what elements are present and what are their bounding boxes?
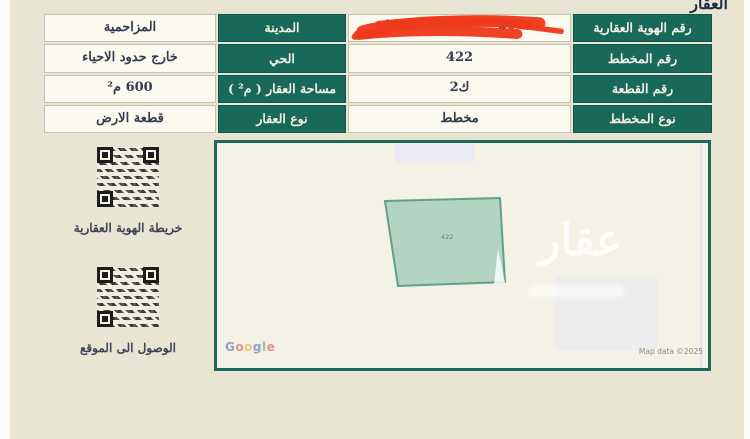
label-plan-number: رقم المخطط — [573, 44, 712, 72]
watermark-aqar: عقار — [539, 215, 622, 266]
watermark-subtext-blur — [528, 285, 624, 298]
label-parcel-number: رقم القطعة — [573, 75, 712, 103]
google-logo: Google — [225, 340, 275, 354]
qr-finder-icon — [97, 311, 113, 327]
value-parcel-number: 2ك — [348, 75, 571, 103]
qr-finder-icon — [97, 191, 113, 207]
qr-finder-icon — [143, 267, 159, 283]
qr-label-property-id-map: خريطة الهوية العقارية — [42, 221, 214, 235]
parcel-number-label: 422 — [441, 234, 454, 241]
value-plan-type: مخطط — [348, 105, 571, 133]
value-property-type: قطعة الارض — [44, 105, 216, 133]
qr-block-location-access: الوصول الى الموقع — [42, 267, 214, 355]
value-city: المزاحمية — [44, 14, 216, 42]
qr-label-location-access: الوصول الى الموقع — [42, 341, 214, 355]
label-property-type: نوع العقار — [218, 105, 346, 133]
qr-finder-icon — [97, 267, 113, 283]
value-property-area: 600 م² — [44, 75, 216, 103]
redacted-id-wrapper: 112 2004 — [349, 15, 570, 41]
value-district: خارج حدود الاحياء — [44, 44, 216, 72]
map-data-attribution: Map data ©2025 — [639, 347, 703, 356]
label-district: الحي — [218, 44, 346, 72]
label-plan-type: نوع المخطط — [573, 105, 712, 133]
value-plan-number: 422 — [348, 44, 571, 72]
photo-edge-left — [0, 0, 10, 439]
qr-block-property-id-map: خريطة الهوية العقارية — [42, 147, 214, 235]
property-info-table: رقم الهوية العقارية 112 2004 المدينة الم… — [42, 14, 712, 133]
qr-finder-icon — [143, 147, 159, 163]
qr-code-property-id-map-icon — [97, 147, 159, 207]
map-view: 422 عقار Google Map data ©2025 — [214, 140, 711, 371]
label-property-id: رقم الهوية العقارية — [573, 14, 712, 42]
red-scribble-redaction — [349, 15, 570, 41]
property-record-card: العقار رقم الهوية العقارية 112 2004 المد… — [0, 0, 750, 439]
label-city: المدينة — [218, 14, 346, 42]
value-property-id-redacted: 112 2004 — [348, 14, 571, 42]
photo-edge-right — [744, 0, 750, 439]
label-property-area: مساحة العقار ( م² ) — [218, 75, 346, 103]
qr-code-location-access-icon — [97, 267, 159, 327]
qr-finder-icon — [97, 147, 113, 163]
parcel-polygon — [217, 143, 708, 368]
page-title: العقار — [690, 0, 728, 13]
